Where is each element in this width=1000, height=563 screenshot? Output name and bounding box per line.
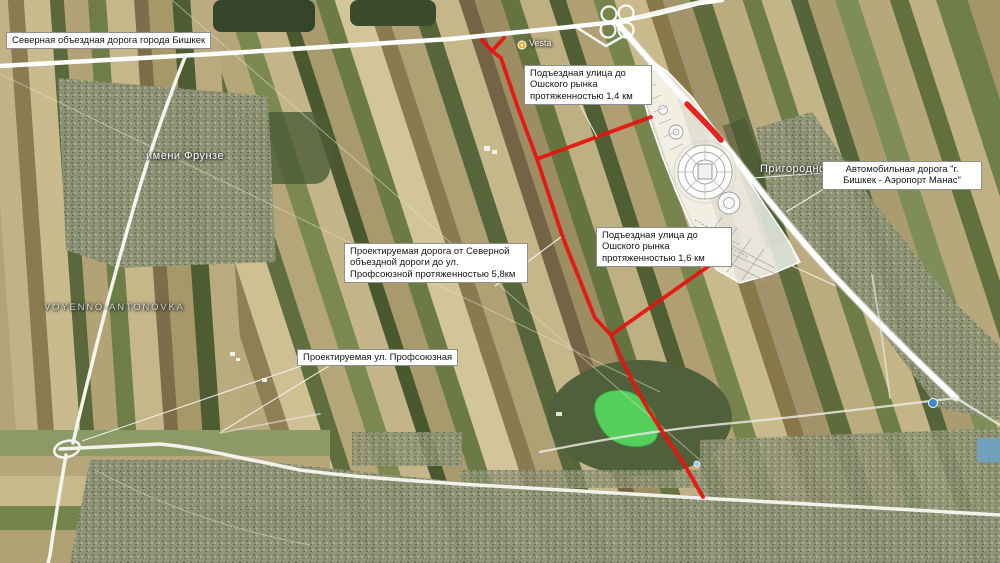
small-blue-poi-icon (694, 461, 700, 467)
label-access-road-1-6: Подъездная улица до Ошского рынка протяж… (596, 227, 732, 267)
satellite-map: Северная объездная дорога города Бишкек … (0, 0, 1000, 563)
blue-poi-icon (929, 399, 938, 408)
label-projected-road-5-8: Проектируемая дорога от Северной объездн… (344, 243, 528, 283)
water-feature (977, 438, 1000, 462)
place-imeni-frunze: имени Фрунзе (146, 150, 224, 162)
label-airport-road: Автомобильная дорога "г. Бишкек - Аэропо… (822, 161, 982, 190)
label-bypass-road: Северная объездная дорога города Бишкек (6, 32, 211, 49)
label-access-road-1-4: Подъездная улица до Ошского рынка протяж… (524, 65, 652, 105)
place-voyenno-antonovka: VOYENNO-ANTONOVKA (44, 302, 185, 313)
label-profsoyuznaya-street: Проектируемая ул. Профсоюзная (297, 349, 458, 366)
place-vesta: Vesta (529, 38, 552, 48)
